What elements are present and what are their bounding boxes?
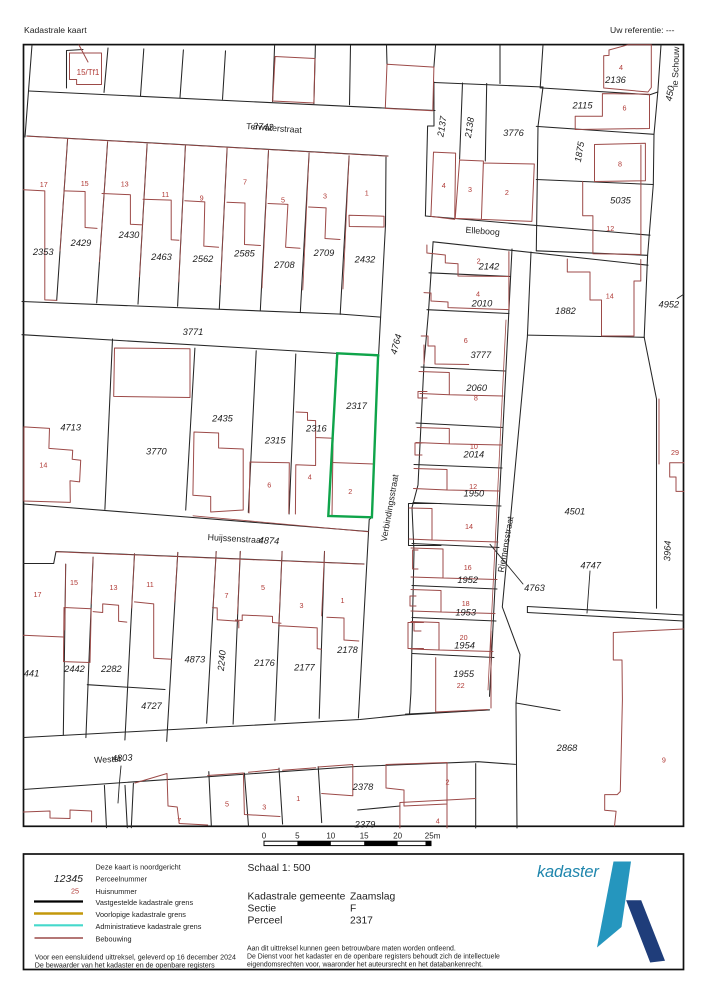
svg-text:13: 13 bbox=[121, 180, 129, 189]
svg-text:4: 4 bbox=[436, 817, 440, 826]
svg-text:Kadastrale gemeente: Kadastrale gemeente bbox=[248, 892, 346, 903]
svg-text:1: 1 bbox=[365, 189, 369, 198]
svg-text:15: 15 bbox=[81, 179, 89, 188]
svg-text:2709: 2709 bbox=[313, 248, 335, 258]
svg-text:4803: 4803 bbox=[112, 752, 134, 763]
svg-text:1: 1 bbox=[296, 794, 300, 803]
svg-text:2178: 2178 bbox=[336, 645, 359, 655]
svg-text:6: 6 bbox=[623, 104, 627, 113]
svg-text:2: 2 bbox=[505, 188, 509, 197]
svg-text:eigendomsrechten voor, waarond: eigendomsrechten voor, waaronder het aut… bbox=[247, 961, 483, 968]
svg-text:5: 5 bbox=[295, 832, 300, 841]
svg-text:1882: 1882 bbox=[555, 306, 577, 316]
svg-text:8: 8 bbox=[474, 394, 478, 403]
svg-text:5: 5 bbox=[261, 583, 265, 592]
svg-text:ie Schouw: ie Schouw bbox=[670, 46, 681, 88]
svg-text:2429: 2429 bbox=[70, 238, 92, 248]
svg-text:12345: 12345 bbox=[54, 873, 83, 885]
svg-text:4874: 4874 bbox=[258, 535, 279, 546]
svg-text:6: 6 bbox=[464, 336, 468, 345]
svg-text:10: 10 bbox=[470, 442, 478, 451]
svg-text:4763: 4763 bbox=[524, 583, 546, 593]
svg-text:Perceel: Perceel bbox=[248, 916, 283, 927]
svg-text:2316: 2316 bbox=[305, 424, 328, 434]
svg-text:Sectie: Sectie bbox=[248, 904, 277, 915]
svg-text:2136: 2136 bbox=[604, 75, 627, 85]
svg-text:5035: 5035 bbox=[610, 196, 632, 206]
svg-text:2282: 2282 bbox=[100, 664, 123, 674]
svg-text:2115: 2115 bbox=[572, 100, 594, 110]
svg-text:4: 4 bbox=[619, 63, 623, 72]
svg-text:8: 8 bbox=[618, 160, 622, 169]
svg-text:5: 5 bbox=[281, 196, 285, 205]
svg-text:2240: 2240 bbox=[216, 649, 228, 672]
svg-text:2562: 2562 bbox=[192, 254, 215, 264]
svg-text:De bewaarder van het kadaster: De bewaarder van het kadaster en de open… bbox=[35, 962, 215, 970]
svg-text:14: 14 bbox=[606, 291, 614, 300]
svg-text:4: 4 bbox=[308, 473, 312, 482]
svg-text:Perceelnummer: Perceelnummer bbox=[96, 875, 148, 884]
svg-text:2463: 2463 bbox=[150, 252, 173, 262]
svg-text:10: 10 bbox=[326, 832, 335, 841]
svg-text:12: 12 bbox=[606, 224, 614, 233]
svg-text:7: 7 bbox=[177, 816, 181, 825]
svg-text:3: 3 bbox=[262, 802, 266, 811]
svg-text:Aan dit uittreksel kunnen geen: Aan dit uittreksel kunnen geen betrouwba… bbox=[247, 946, 456, 953]
svg-text:13: 13 bbox=[110, 583, 118, 592]
svg-text:15/Tf1: 15/Tf1 bbox=[77, 68, 100, 77]
svg-text:2317: 2317 bbox=[350, 916, 373, 927]
svg-text:2142: 2142 bbox=[478, 261, 501, 271]
svg-text:4727: 4727 bbox=[141, 701, 163, 711]
svg-text:9: 9 bbox=[662, 755, 666, 764]
svg-text:2: 2 bbox=[446, 778, 450, 787]
svg-text:1955: 1955 bbox=[453, 669, 475, 679]
svg-text:7: 7 bbox=[243, 178, 247, 187]
svg-text:15: 15 bbox=[70, 578, 78, 587]
svg-text:17: 17 bbox=[40, 180, 48, 189]
svg-text:4: 4 bbox=[476, 289, 480, 298]
svg-text:16: 16 bbox=[464, 563, 472, 572]
svg-text:2176: 2176 bbox=[253, 658, 276, 668]
svg-text:2379: 2379 bbox=[354, 820, 376, 830]
svg-text:Zaamslag: Zaamslag bbox=[350, 892, 395, 903]
svg-text:441: 441 bbox=[24, 669, 40, 679]
svg-text:Deze kaart is noordgericht: Deze kaart is noordgericht bbox=[96, 863, 181, 872]
svg-text:3770: 3770 bbox=[146, 447, 168, 457]
svg-text:Bebouwing: Bebouwing bbox=[96, 935, 132, 944]
svg-text:25m: 25m bbox=[425, 832, 441, 841]
svg-text:2317: 2317 bbox=[345, 401, 368, 411]
svg-text:0: 0 bbox=[262, 832, 267, 841]
svg-text:Schaal 1: 500: Schaal 1: 500 bbox=[248, 863, 311, 874]
svg-text:2: 2 bbox=[477, 256, 481, 265]
svg-text:Kadastrale kaart: Kadastrale kaart bbox=[24, 25, 87, 35]
svg-text:2: 2 bbox=[348, 487, 352, 496]
svg-text:4713: 4713 bbox=[60, 423, 82, 433]
svg-text:3742: 3742 bbox=[252, 121, 274, 133]
svg-text:1952: 1952 bbox=[457, 575, 479, 585]
svg-text:kadaster: kadaster bbox=[537, 863, 600, 881]
svg-text:4873: 4873 bbox=[184, 655, 206, 665]
svg-text:29: 29 bbox=[671, 448, 679, 457]
svg-text:25: 25 bbox=[71, 887, 79, 896]
svg-text:3776: 3776 bbox=[503, 128, 525, 138]
svg-text:F: F bbox=[350, 904, 356, 915]
svg-text:Uw referentie: ---: Uw referentie: --- bbox=[610, 25, 675, 35]
svg-text:1954: 1954 bbox=[454, 641, 475, 651]
svg-text:De Dienst voor het kadaster en: De Dienst voor het kadaster en de openba… bbox=[247, 954, 500, 961]
svg-text:20: 20 bbox=[393, 832, 402, 841]
svg-text:1: 1 bbox=[341, 596, 345, 605]
svg-text:3: 3 bbox=[323, 191, 327, 200]
svg-text:3: 3 bbox=[468, 185, 472, 194]
svg-text:2315: 2315 bbox=[264, 436, 287, 446]
svg-text:2177: 2177 bbox=[293, 663, 316, 673]
svg-text:14: 14 bbox=[465, 522, 473, 531]
svg-text:Vastgestelde kadastrale grens: Vastgestelde kadastrale grens bbox=[96, 898, 194, 907]
svg-text:9: 9 bbox=[200, 194, 204, 203]
svg-text:4: 4 bbox=[442, 181, 446, 190]
svg-text:2060: 2060 bbox=[465, 383, 488, 393]
svg-text:14: 14 bbox=[39, 460, 47, 469]
svg-text:2432: 2432 bbox=[354, 255, 377, 265]
svg-text:3777: 3777 bbox=[470, 350, 492, 360]
svg-text:2353: 2353 bbox=[32, 247, 55, 257]
svg-text:Administratieve kadastrale gre: Administratieve kadastrale grens bbox=[96, 922, 202, 931]
svg-text:4747: 4747 bbox=[580, 560, 602, 570]
svg-text:4501: 4501 bbox=[564, 507, 585, 517]
svg-text:3964: 3964 bbox=[662, 540, 673, 561]
svg-text:4952: 4952 bbox=[659, 299, 681, 309]
svg-text:Voor een eensluidend uittrekse: Voor een eensluidend uittreksel, gelever… bbox=[35, 954, 236, 962]
svg-text:2585: 2585 bbox=[233, 249, 256, 259]
svg-text:22: 22 bbox=[457, 681, 465, 690]
svg-text:3: 3 bbox=[300, 601, 304, 610]
svg-text:2014: 2014 bbox=[463, 450, 485, 460]
svg-text:2378: 2378 bbox=[352, 782, 375, 792]
svg-text:12: 12 bbox=[469, 482, 477, 491]
svg-text:20: 20 bbox=[460, 633, 468, 642]
svg-text:17: 17 bbox=[34, 590, 42, 599]
svg-text:6: 6 bbox=[267, 481, 271, 490]
svg-text:2868: 2868 bbox=[556, 743, 579, 753]
svg-text:2010: 2010 bbox=[471, 299, 494, 309]
svg-text:2442: 2442 bbox=[63, 664, 86, 674]
svg-text:18: 18 bbox=[462, 599, 470, 608]
svg-text:Voorlopige kadastrale grens: Voorlopige kadastrale grens bbox=[96, 910, 187, 919]
svg-text:5: 5 bbox=[225, 800, 229, 809]
svg-text:1953: 1953 bbox=[455, 608, 477, 618]
svg-text:Huisnummer: Huisnummer bbox=[96, 887, 138, 896]
svg-text:3771: 3771 bbox=[183, 327, 204, 337]
svg-text:2430: 2430 bbox=[118, 230, 141, 240]
svg-text:15: 15 bbox=[360, 832, 369, 841]
svg-text:2708: 2708 bbox=[273, 260, 296, 270]
svg-text:11: 11 bbox=[162, 190, 169, 199]
svg-text:11: 11 bbox=[146, 580, 153, 589]
svg-text:2435: 2435 bbox=[211, 414, 234, 424]
svg-text:7: 7 bbox=[225, 591, 229, 600]
